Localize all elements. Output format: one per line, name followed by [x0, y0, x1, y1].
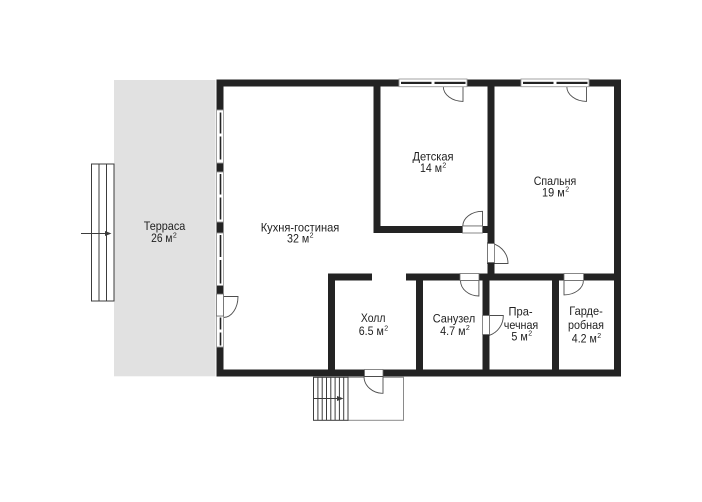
svg-text:32 м: 32 м — [287, 231, 309, 245]
svg-text:26 м: 26 м — [151, 231, 172, 245]
svg-text:2: 2 — [384, 325, 388, 332]
svg-text:2: 2 — [310, 233, 314, 240]
svg-text:Гарде-: Гарде- — [569, 304, 603, 318]
svg-text:2: 2 — [442, 162, 446, 169]
svg-text:2: 2 — [565, 187, 569, 194]
svg-text:2: 2 — [597, 333, 601, 340]
svg-text:4.2 м: 4.2 м — [572, 332, 597, 346]
svg-text:19 м: 19 м — [542, 185, 565, 199]
svg-text:робная: робная — [568, 318, 604, 332]
svg-text:Холл: Холл — [361, 311, 386, 325]
svg-text:Пра-: Пра- — [509, 304, 533, 318]
svg-text:4.7 м: 4.7 м — [440, 324, 465, 338]
svg-text:2: 2 — [528, 331, 532, 338]
svg-text:2: 2 — [466, 325, 470, 332]
svg-text:5 м: 5 м — [511, 329, 527, 343]
svg-text:6.5 м: 6.5 м — [359, 324, 384, 338]
svg-text:2: 2 — [173, 232, 177, 239]
svg-text:14 м: 14 м — [420, 161, 442, 175]
